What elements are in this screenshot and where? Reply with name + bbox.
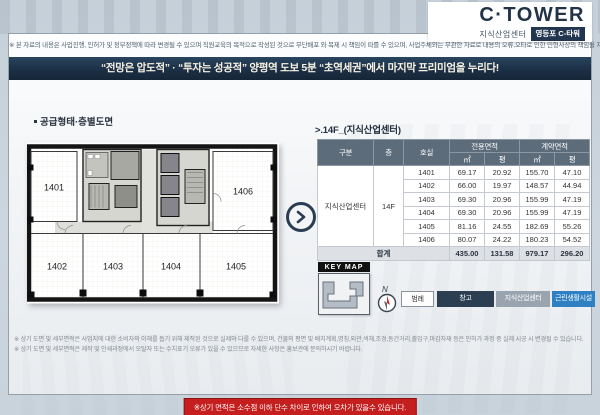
category-cell: 지식산업센터 bbox=[318, 166, 374, 247]
value-cell: 24.22 bbox=[485, 233, 520, 247]
value-cell: 80.07 bbox=[450, 233, 485, 247]
keymap-shape bbox=[319, 274, 369, 314]
value-cell: 47.10 bbox=[555, 166, 590, 180]
units-section-title: >.14F_(지식산업센터) bbox=[315, 122, 401, 136]
floorplan-section-title: 공급형태·층별도면 bbox=[34, 114, 113, 128]
value-cell: 148.57 bbox=[520, 179, 555, 193]
total-value-cell: 131.58 bbox=[485, 247, 520, 261]
total-value-cell: 435.00 bbox=[450, 247, 485, 261]
legend-item-warehouse: 창고 bbox=[437, 291, 494, 307]
col-header-contract: 계약면적 bbox=[520, 140, 590, 153]
room-cell: 1406 bbox=[404, 233, 450, 247]
col-header-room: 호실 bbox=[404, 140, 450, 166]
value-cell: 55.26 bbox=[555, 220, 590, 234]
unit-header-py: 평 bbox=[485, 153, 520, 166]
brand-badge: 영등포 C-타워 bbox=[531, 27, 586, 41]
unit-header-m2: ㎡ bbox=[520, 153, 555, 166]
floor-cell: 14F bbox=[374, 166, 404, 247]
bottom-red-notice: ※상기 면적은 소수점 이하 단수 차이로 인하여 오차가 있을수 있습니다. bbox=[184, 398, 417, 415]
room-label-1403: 1403 bbox=[103, 262, 123, 272]
value-cell: 155.70 bbox=[520, 166, 555, 180]
legend-item-neighborhood: 근린생활시설 bbox=[552, 291, 595, 307]
value-cell: 54.52 bbox=[555, 233, 590, 247]
footnote-2: ※ 상기 도면 및 세부면적은 제작 및 인쇄과정에서 오탈자 또는 수치표기 … bbox=[14, 344, 362, 353]
unit-header-m2: ㎡ bbox=[450, 153, 485, 166]
total-value-cell: 979.17 bbox=[520, 247, 555, 261]
value-cell: 47.19 bbox=[555, 206, 590, 220]
next-chevron-button[interactable] bbox=[286, 202, 316, 232]
legend-item-industry: 지식산업센터 bbox=[496, 291, 550, 307]
brand-logo: C·TOWER 지식산업센터 영등포 C-타워 bbox=[428, 2, 592, 42]
value-cell: 69.17 bbox=[450, 166, 485, 180]
total-row: 합계 435.00 131.58 979.17 296.20 bbox=[318, 247, 590, 261]
room-label-1401: 1401 bbox=[44, 183, 64, 193]
content-frame: ※ 본 자료의 내용은 사업진행, 인허가 및 정부정책에 따라 변경될 수 있… bbox=[8, 33, 592, 395]
room-cell: 1405 bbox=[404, 220, 450, 234]
value-cell: 180.23 bbox=[520, 233, 555, 247]
brand-name: C·TOWER bbox=[428, 4, 585, 26]
room-cell: 1403 bbox=[404, 193, 450, 207]
keymap-box bbox=[318, 273, 370, 315]
chevron-right-icon bbox=[293, 209, 309, 225]
value-cell: 155.99 bbox=[520, 193, 555, 207]
value-cell: 47.19 bbox=[555, 193, 590, 207]
area-table: 구분 층 호실 전용면적 계약면적 ㎡ 평 ㎡ 평 지식산업센터 14F 140… bbox=[317, 139, 590, 261]
core-right bbox=[157, 150, 209, 226]
brand-category: 지식산업센터 bbox=[479, 29, 526, 40]
value-cell: 44.94 bbox=[555, 179, 590, 193]
total-label-cell: 합계 bbox=[318, 247, 450, 261]
section-bullet-icon bbox=[34, 120, 37, 123]
value-cell: 20.92 bbox=[485, 166, 520, 180]
room-label-1406: 1406 bbox=[233, 187, 253, 197]
total-value-cell: 296.20 bbox=[555, 247, 590, 261]
core-left bbox=[83, 150, 141, 222]
legend-title: 범례 bbox=[401, 291, 434, 307]
table-row: 지식산업센터 14F 1401 69.17 20.92 155.70 47.10 bbox=[318, 166, 590, 180]
room-label-1405: 1405 bbox=[226, 262, 246, 272]
plan-legend: 범례 창고 지식산업센터 근린생활시설 bbox=[401, 291, 595, 307]
room-cell: 1402 bbox=[404, 179, 450, 193]
col-header-floor: 층 bbox=[374, 140, 404, 166]
unit-header-py: 평 bbox=[555, 153, 590, 166]
value-cell: 81.16 bbox=[450, 220, 485, 234]
col-header-exclusive: 전용면적 bbox=[450, 140, 520, 153]
room-label-1402: 1402 bbox=[47, 262, 67, 272]
value-cell: 69.30 bbox=[450, 193, 485, 207]
col-header-gubun: 구분 bbox=[318, 140, 374, 166]
svg-text:N: N bbox=[382, 285, 388, 294]
floorplan-drawing: 1401 1406 1402 1403 1404 1405 bbox=[27, 140, 279, 308]
value-cell: 19.97 bbox=[485, 179, 520, 193]
footnote-1: ※ 상기 도면 및 세부면적은 사업지에 대한 소비자의 이해를 돕기 위해 제… bbox=[14, 334, 584, 343]
value-cell: 20.96 bbox=[485, 193, 520, 207]
value-cell: 182.69 bbox=[520, 220, 555, 234]
room-cell: 1404 bbox=[404, 206, 450, 220]
keymap-label: KEY MAP bbox=[318, 262, 370, 272]
headline-banner: “전망은 압도적” · “투자는 성공적” 양평역 도보 5분 “초역세권”에서… bbox=[9, 57, 591, 80]
value-cell: 66.00 bbox=[450, 179, 485, 193]
value-cell: 24.55 bbox=[485, 220, 520, 234]
compass-icon: N bbox=[374, 284, 400, 314]
value-cell: 155.99 bbox=[520, 206, 555, 220]
value-cell: 69.30 bbox=[450, 206, 485, 220]
room-cell: 1401 bbox=[404, 166, 450, 180]
room-label-1404: 1404 bbox=[161, 262, 181, 272]
value-cell: 20.96 bbox=[485, 206, 520, 220]
